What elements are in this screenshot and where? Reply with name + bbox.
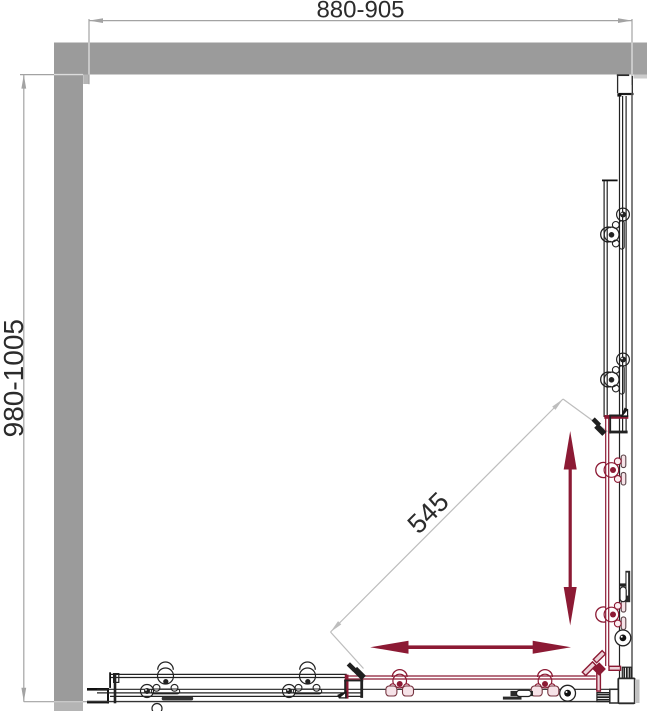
svg-text:880-905: 880-905 [316, 0, 404, 23]
svg-text:980-1005: 980-1005 [0, 319, 29, 437]
